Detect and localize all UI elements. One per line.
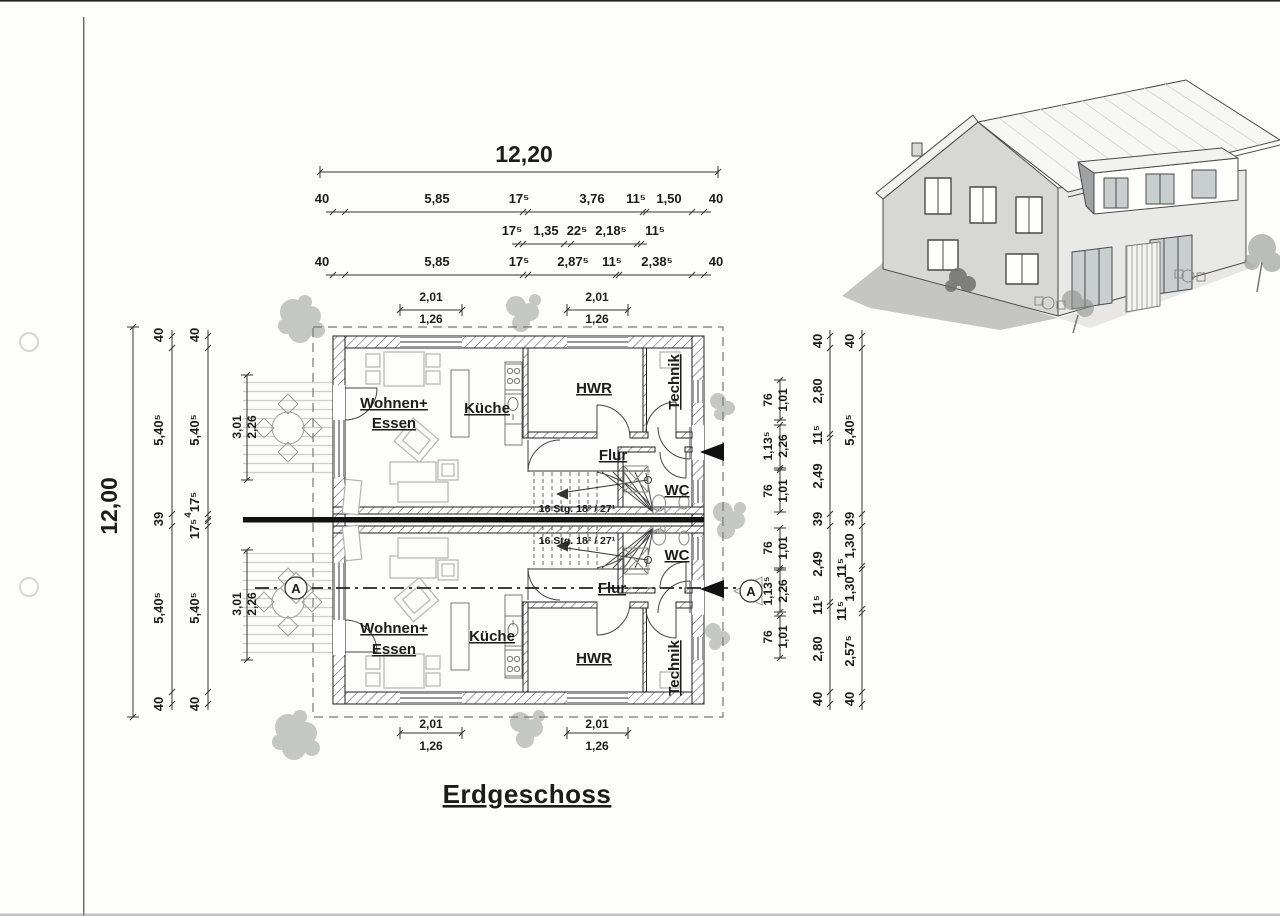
dim-label: 2,18⁵ — [595, 223, 626, 238]
dim-label: 11⁵ — [834, 558, 849, 578]
dim-label: 5,40⁵ — [187, 592, 202, 623]
dim-label: 40 — [315, 191, 329, 206]
dim-label: 39 — [810, 512, 825, 526]
dim-opening-sill: 1,01 — [776, 625, 790, 649]
scanned-floor-plan-page: A A 12,20 40 5,85 17⁵ 3,76 11⁵ 1,50 40 1… — [0, 0, 1280, 916]
room-label-living: Essen — [372, 641, 416, 658]
dim-label: 17⁵ — [509, 254, 530, 269]
dim-window-sill: 1,26 — [585, 312, 609, 326]
room-label-utility: HWR — [576, 650, 612, 667]
dim-label: 40 — [842, 334, 857, 348]
dim-opening-width: 76 — [761, 541, 775, 555]
dim-opening-width: 1,13⁵ — [761, 577, 775, 606]
section-label: A — [746, 584, 756, 599]
dim-label: 2,80 — [810, 636, 825, 661]
room-label-living: Wohnen+ — [360, 620, 428, 637]
dim-label: 5,40⁵ — [151, 414, 166, 445]
dim-label: 11⁵ — [810, 595, 825, 615]
dim-terrace-width: 3,01 — [230, 592, 244, 616]
section-marker-right: A — [734, 577, 762, 605]
section-label: A — [291, 581, 301, 596]
dim-opening-sill: 2,26 — [776, 434, 790, 458]
dim-label: 22⁵ — [567, 223, 588, 238]
dim-label: 11⁵ — [645, 223, 665, 238]
bush-right-lower — [705, 623, 730, 650]
dim-opening-sill: 1,01 — [776, 388, 790, 412]
bush-top-center — [506, 294, 541, 332]
dim-label: 40 — [810, 334, 825, 348]
dim-label: 5,40⁵ — [151, 592, 166, 623]
dim-label: 40 — [810, 692, 825, 706]
dim-terrace-width: 3,01 — [230, 415, 244, 439]
dim-opening-width: 1,13⁵ — [761, 432, 775, 461]
dim-label: 2,49 — [810, 551, 825, 576]
stair-count-label: 16 Stg. 18² / 27¹ — [539, 503, 616, 515]
privacy-screen — [1126, 242, 1160, 312]
dim-label: 2,57⁵ — [842, 635, 857, 666]
dim-window-width: 2,01 — [585, 717, 609, 731]
room-label-living: Essen — [372, 415, 416, 432]
dim-label: 40 — [709, 191, 723, 206]
dim-overall-height: 12,00 — [96, 477, 122, 535]
stair-count-label: 16 Stg. 18² / 27¹ — [539, 535, 616, 547]
dim-label: 40 — [709, 254, 723, 269]
dim-label: 40 — [151, 697, 166, 711]
dim-label: 5,40⁵ — [187, 414, 202, 445]
dim-label: 1,30 — [842, 533, 857, 558]
dimension-lines — [127, 166, 865, 739]
dim-window-width: 2,01 — [585, 290, 609, 304]
room-label-wc: WC — [665, 482, 690, 499]
dim-overall-width: 12,20 — [495, 141, 553, 167]
dim-label: 5,85 — [424, 191, 449, 206]
party-wall — [243, 507, 704, 533]
dim-window-width: 2,01 — [419, 290, 443, 304]
dim-label: 17⁵ — [502, 223, 523, 238]
dim-label: 1,50 — [656, 191, 681, 206]
punch-hole — [20, 333, 38, 351]
dim-label: 17⁵ — [509, 191, 530, 206]
dim-label: 11⁵ — [834, 601, 849, 621]
dim-label: 5,85 — [424, 254, 449, 269]
dim-label: 5,40⁵ — [842, 414, 857, 445]
dim-label: 11⁵ — [626, 191, 646, 206]
dim-label: 2,49 — [810, 463, 825, 488]
room-label-hall: Flur — [598, 580, 626, 597]
dim-terrace-sill: 2,26 — [245, 592, 259, 616]
stair-direction-arrow — [556, 489, 568, 500]
room-label-hall: Flur — [599, 447, 627, 464]
dim-label: 40 — [187, 328, 202, 342]
party-wall-axis — [243, 517, 704, 523]
dim-label: 11⁵ — [810, 425, 825, 445]
dim-window-sill: 1,26 — [419, 312, 443, 326]
house-3d-rendering — [842, 80, 1280, 333]
room-label-kitchen: Küche — [469, 628, 515, 645]
dim-label: 1,35 — [533, 223, 558, 238]
room-label-utility: HWR — [576, 380, 612, 397]
dim-label: 40 — [187, 697, 202, 711]
dim-opening-width: 76 — [761, 630, 775, 644]
dim-opening-width: 76 — [761, 393, 775, 407]
punch-hole — [20, 578, 38, 596]
page-title: Erdgeschoss — [443, 779, 612, 809]
dim-label: 4 — [183, 512, 194, 518]
chimney — [912, 143, 922, 156]
dim-label: 40 — [151, 328, 166, 342]
room-label-wc: WC — [665, 547, 690, 564]
dim-label: 40 — [842, 692, 857, 706]
dim-label: 39 — [151, 512, 166, 526]
dim-label: 11⁵ — [602, 254, 622, 269]
dim-label: 2,80 — [810, 378, 825, 403]
tree-bottom-left — [272, 710, 320, 760]
bush-bottom-center — [510, 710, 545, 748]
dim-terrace-sill: 2,26 — [245, 415, 259, 439]
bush-right-middle — [713, 502, 746, 539]
dim-label: 39 — [842, 512, 857, 526]
room-label-technik: Technik — [666, 640, 683, 696]
dim-opening-width: 76 — [761, 484, 775, 498]
tree-top-left — [278, 295, 325, 343]
dim-label: 17⁵ — [187, 492, 202, 513]
dim-label: 17⁵ — [187, 519, 202, 540]
room-label-living: Wohnen+ — [360, 395, 428, 412]
dim-label: 3,76 — [579, 191, 604, 206]
dim-label: 2,38⁵ — [641, 254, 672, 269]
dim-window-sill: 1,26 — [419, 739, 443, 753]
dim-opening-sill: 2,26 — [776, 579, 790, 603]
dim-label: 1,30 — [842, 576, 857, 601]
dim-opening-sill: 1,01 — [776, 536, 790, 560]
dim-label: 2,87⁵ — [557, 254, 588, 269]
dim-window-sill: 1,26 — [585, 739, 609, 753]
dim-label: 40 — [315, 254, 329, 269]
dim-opening-sill: 1,01 — [776, 479, 790, 503]
dim-window-width: 2,01 — [419, 717, 443, 731]
floor-plan-drawing: A A 12,20 40 5,85 17⁵ 3,76 11⁵ 1,50 40 1… — [0, 0, 1280, 916]
room-label-kitchen: Küche — [464, 400, 510, 417]
room-label-technik: Technik — [666, 354, 683, 410]
